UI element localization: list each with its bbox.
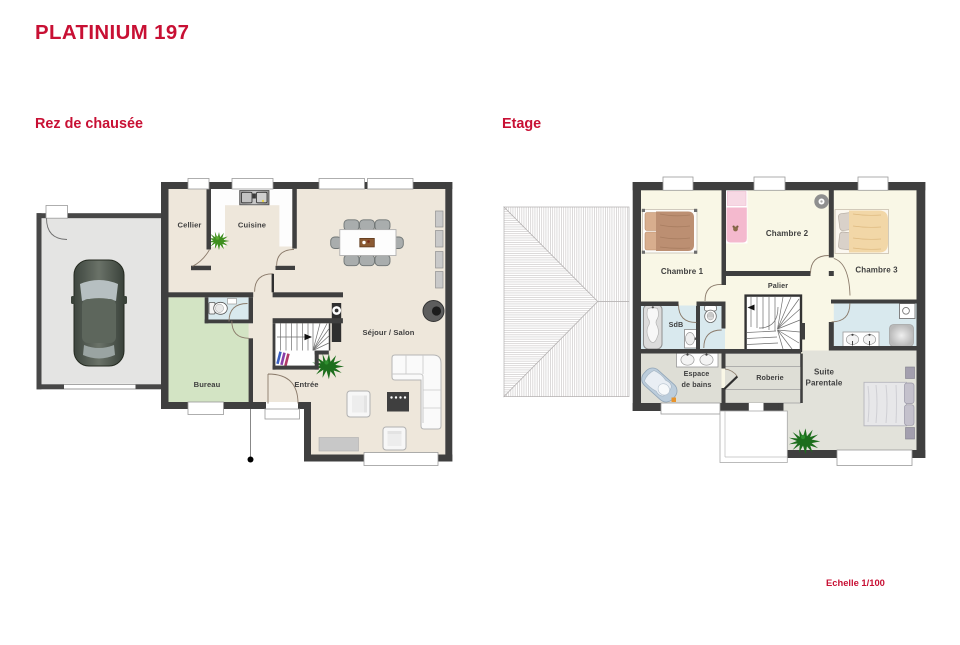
svg-text:Cuisine: Cuisine xyxy=(238,221,266,230)
svg-text:SdB: SdB xyxy=(669,320,684,329)
svg-text:Chambre 3: Chambre 3 xyxy=(855,265,898,274)
svg-text:Bureau: Bureau xyxy=(194,380,221,389)
svg-text:Entrée: Entrée xyxy=(294,380,318,389)
svg-text:Parentale: Parentale xyxy=(806,378,843,387)
svg-text:Chambre 1: Chambre 1 xyxy=(661,267,704,276)
svg-text:Echelle 1/100: Echelle 1/100 xyxy=(826,577,885,588)
svg-text:Etage: Etage xyxy=(502,116,541,132)
svg-text:Espace: Espace xyxy=(684,369,710,378)
svg-text:Chambre 2: Chambre 2 xyxy=(766,229,809,238)
svg-text:de bains: de bains xyxy=(682,380,712,389)
svg-text:Rez de chausée: Rez de chausée xyxy=(35,116,143,132)
svg-text:Séjour / Salon: Séjour / Salon xyxy=(362,328,414,337)
svg-text:Cellier: Cellier xyxy=(178,221,202,230)
svg-text:Suite: Suite xyxy=(814,367,835,376)
svg-text:Roberie: Roberie xyxy=(756,373,783,382)
svg-text:PLATINIUM 197: PLATINIUM 197 xyxy=(35,22,189,44)
svg-text:Palier: Palier xyxy=(768,281,788,290)
